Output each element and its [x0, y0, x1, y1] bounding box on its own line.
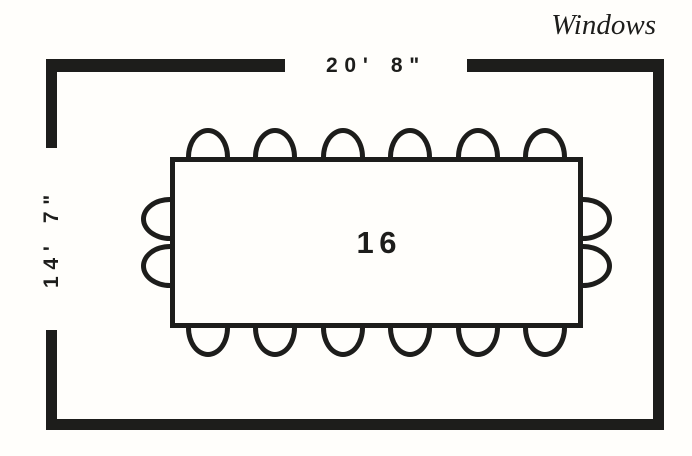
- room-height-dimension: 14' 7": [39, 163, 65, 313]
- wall-top-left-segment: [46, 59, 285, 72]
- wall-left-lower-segment: [46, 330, 57, 430]
- wall-right: [653, 59, 664, 430]
- room-width-dimension: 20' 8": [285, 53, 467, 79]
- wall-bottom: [46, 419, 664, 430]
- windows-label: Windows: [470, 8, 656, 42]
- floor-plan: Windows 20' 8" 14' 7" 16: [0, 0, 692, 456]
- banquet-table: 16: [170, 157, 583, 328]
- table-seat-count: 16: [351, 225, 402, 261]
- wall-top-right-segment: [467, 59, 664, 72]
- wall-left-upper-segment: [46, 59, 57, 148]
